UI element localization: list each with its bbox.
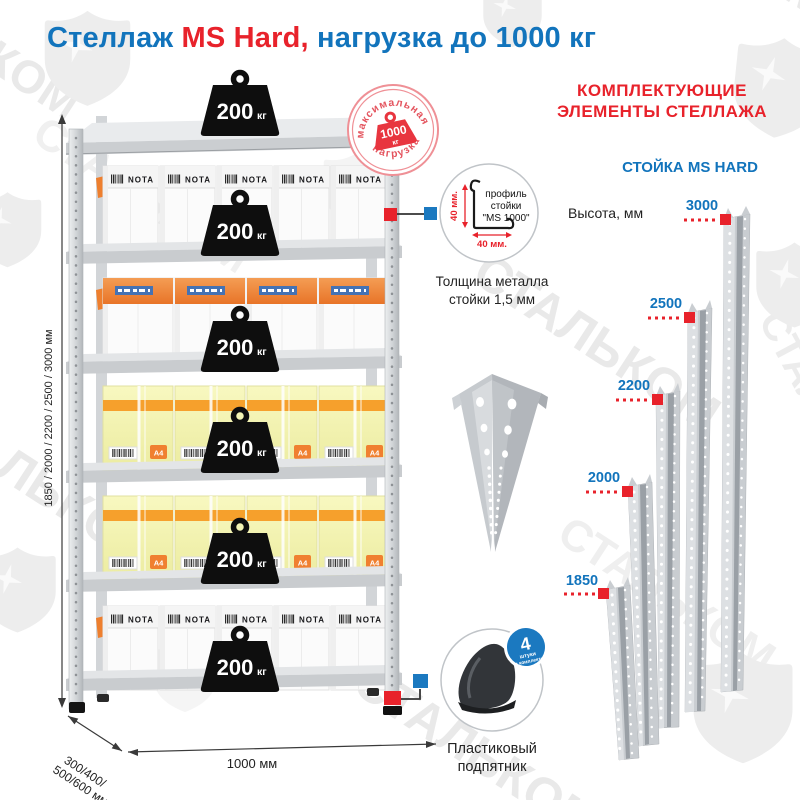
corner-post-perspective	[452, 374, 548, 552]
watermark-text: СТАЛЬКОМ	[750, 304, 800, 523]
height-caption: Высота, мм	[568, 205, 643, 221]
post-height-label: 2500	[650, 296, 682, 312]
foot-caption-2: подпятник	[458, 759, 528, 775]
carton-box	[103, 278, 173, 362]
foot-caption-1: Пластиковый	[447, 741, 537, 757]
shelf-load-weights	[201, 73, 279, 693]
upright-post-2200	[656, 383, 680, 728]
post-height-label: 2000	[588, 470, 620, 486]
callout-marker-red	[384, 691, 401, 705]
shield-watermark-icon	[756, 243, 800, 328]
post-height-label: 1850	[566, 573, 598, 589]
components-subheading: СТОЙКА MS HARD	[622, 158, 758, 176]
profile-caption-2: стойки	[491, 201, 522, 212]
profile-caption-3: "MS 1000"	[482, 213, 530, 224]
height-options-label: 1850 / 2000 / 2200 / 2500 / 3000 мм	[43, 329, 55, 506]
width-label: 1000 мм	[227, 756, 277, 771]
width-dimension-line	[128, 744, 436, 752]
post-height-marker	[684, 312, 695, 323]
rack-foot	[97, 694, 109, 702]
carton-box	[103, 166, 158, 250]
components-section: КОМПЛЕКТУЮЩИЕ ЭЛЕМЕНТЫ СТЕЛЛАЖА СТОЙКА M…	[557, 81, 767, 760]
title-part-3: нагрузка до 1000 кг	[317, 22, 596, 54]
rack-foot	[69, 702, 85, 713]
post-profile-detail: 40 мм. 40 мм. профиль стойки "MS 1000" Т…	[436, 164, 549, 307]
title-part-1: Стеллаж	[47, 22, 173, 54]
thickness-note-2: стойки 1,5 мм	[449, 292, 535, 307]
rack-foot	[367, 688, 379, 696]
load-weight-badge	[201, 73, 279, 137]
thickness-note-1: Толщина металла	[436, 274, 549, 289]
post-height-marker	[598, 588, 609, 599]
callout-marker-blue	[413, 674, 428, 688]
components-heading-1: КОМПЛЕКТУЮЩИЕ	[577, 81, 747, 100]
carton-box	[331, 166, 386, 250]
post-height-marker	[720, 214, 731, 225]
rack-foot	[383, 706, 402, 715]
components-heading-2: ЭЛЕМЕНТЫ СТЕЛЛАЖА	[557, 102, 767, 121]
stamp-weight-ring	[385, 112, 395, 122]
carton-box	[103, 386, 173, 470]
post-height-marker	[622, 486, 633, 497]
profile-dim-height: 40 мм.	[449, 191, 460, 221]
callout-marker-red	[384, 208, 397, 221]
carton-box	[274, 166, 329, 250]
shield-watermark-icon	[0, 192, 41, 267]
scene-svg: NOTA A4 200 кг СТАЛЬКОМ СТАЛЬКОМ СТАЛЬКО…	[0, 0, 800, 800]
post-height-label: 3000	[686, 198, 718, 214]
post-height-label: 2200	[618, 378, 650, 394]
title-part-2: MS Hard,	[181, 22, 308, 54]
page-title: Стеллаж MS Hard, нагрузка до 1000 кг	[47, 22, 596, 55]
callout-marker-blue	[424, 207, 437, 220]
profile-dim-width: 40 мм.	[477, 239, 507, 250]
carton-box	[103, 496, 173, 580]
plastic-foot-detail: 4 штуки в комплекте Пластиковый подпятни…	[441, 621, 552, 775]
infographic-root: Стеллаж MS Hard, нагрузка до 1000 кг NOT…	[0, 0, 800, 800]
shield-watermark-icon	[0, 548, 56, 633]
profile-caption-1: профиль	[485, 188, 526, 200]
post-height-marker	[652, 394, 663, 405]
